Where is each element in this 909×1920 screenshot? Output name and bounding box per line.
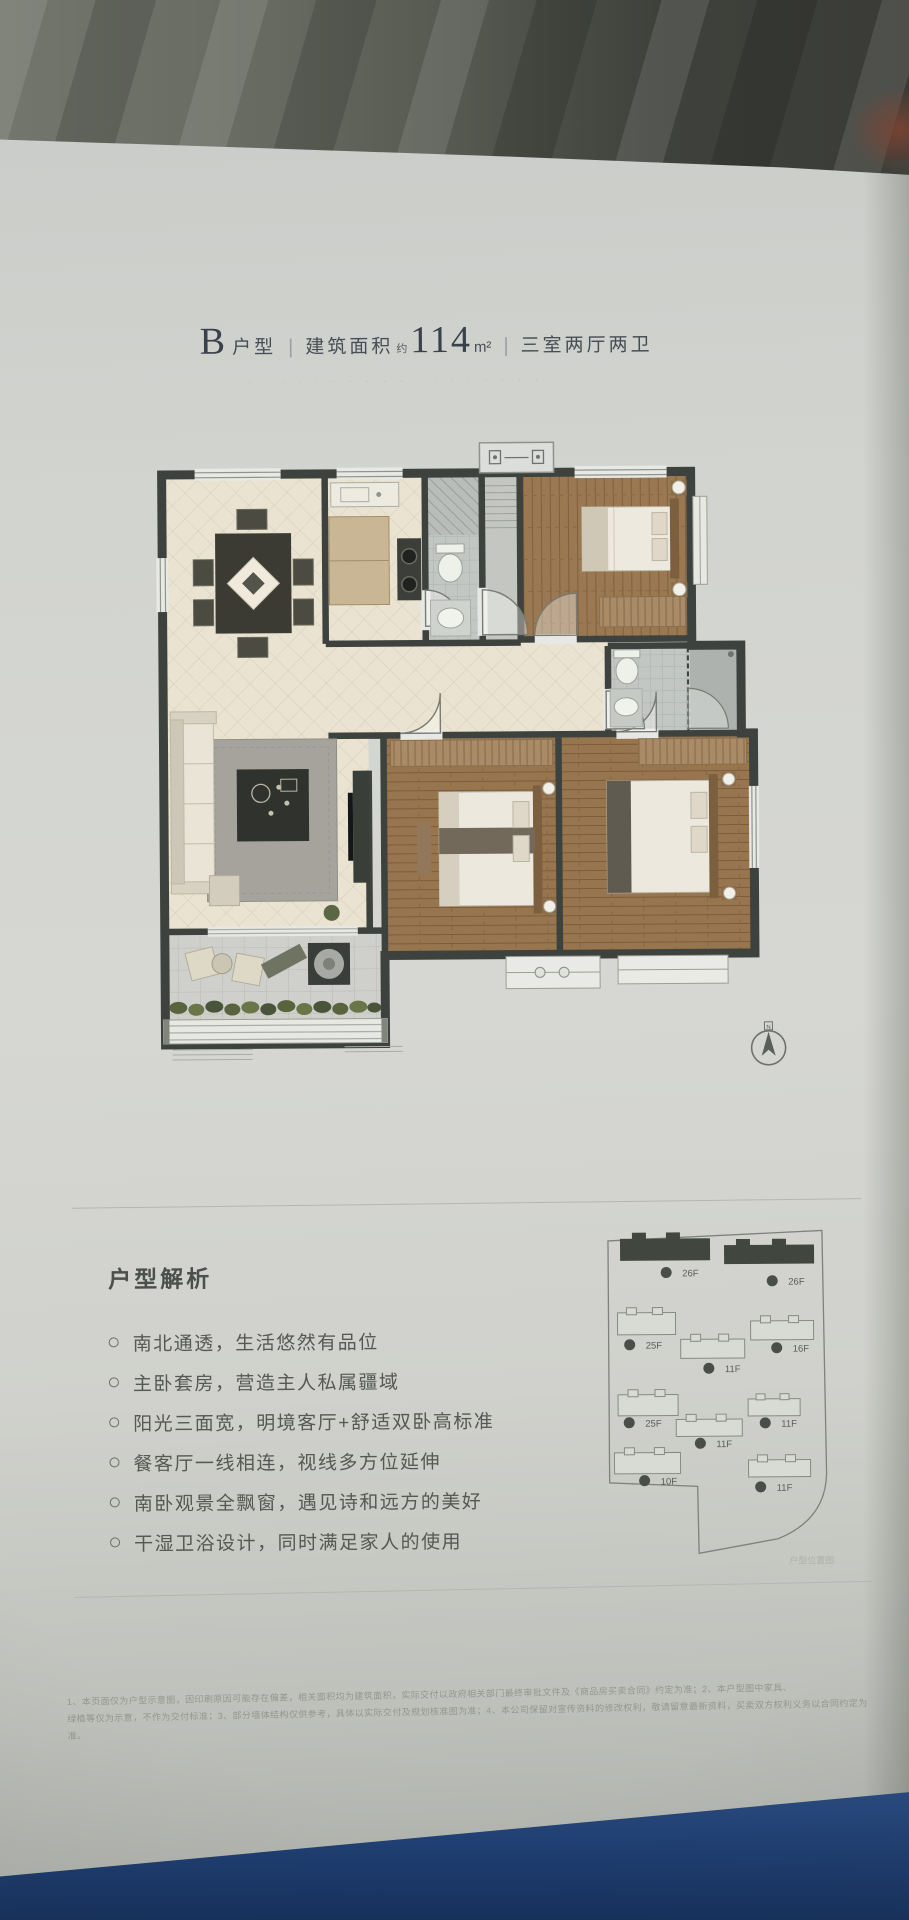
site-building: 11F	[748, 1455, 810, 1494]
bullet-text: 南卧观景全飘窗，遇见诗和远方的美好	[134, 1486, 483, 1515]
lamp-icon	[544, 900, 556, 912]
site-building-highlighted: 26F	[724, 1238, 814, 1288]
list-item: 南卧观景全飘窗，遇见诗和远方的美好	[110, 1479, 580, 1522]
master-wardrobe	[390, 739, 552, 766]
bullet-text: 阳光三面宽，明境客厅+舒适双卧高标准	[133, 1406, 494, 1436]
floor-plan: N	[108, 438, 800, 1088]
bench	[417, 822, 431, 874]
building-floors-label: 25F	[646, 1341, 663, 1352]
building-floors-label: 11F	[777, 1483, 793, 1494]
building-badge	[661, 1267, 672, 1278]
list-item: 主卧套房，营造主人私属疆域	[109, 1359, 579, 1402]
site-building: 11F	[681, 1334, 745, 1375]
lamp-icon	[673, 583, 686, 596]
bullet-icon	[109, 1417, 119, 1427]
tv-icon	[348, 793, 353, 861]
building-badge	[760, 1417, 771, 1428]
disclaimer: 1、本页面仅为户型示意图，因印刷原因可能存在偏差，相关面积均为建筑面积，实际交付…	[67, 1678, 874, 1745]
site-building-highlighted: 26F	[620, 1232, 710, 1280]
balcony-table	[212, 954, 232, 974]
title-watermark: · · · · · · · · · · · · · · · · · ·	[248, 375, 544, 386]
coffee-table	[237, 769, 310, 842]
building-floors-label: 11F	[716, 1439, 732, 1450]
building-badge	[755, 1481, 766, 1492]
building-floors-label: 11F	[725, 1364, 741, 1375]
unit-title: B 户型 | 建筑面积 约 114 m² | 三室两厅两卫	[200, 317, 653, 364]
site-plan-caption: 户型位置图	[789, 1554, 834, 1565]
bullet-icon	[110, 1537, 120, 1547]
area-approx: 约	[396, 340, 407, 356]
bedroom2-wardrobe	[599, 596, 685, 627]
bullet-icon	[110, 1497, 120, 1507]
bullet-text: 餐客厅一线相连，视线多方位延伸	[133, 1447, 441, 1476]
site-building: 11F	[748, 1394, 800, 1430]
area-value: 114	[410, 318, 472, 362]
list-item: 阳光三面宽，明境客厅+舒适双卧高标准	[109, 1399, 579, 1442]
site-building: 16F	[750, 1316, 813, 1355]
unit-label: 户型	[232, 332, 276, 359]
building-floors-label: 11F	[781, 1419, 797, 1430]
site-building: 25F	[617, 1307, 675, 1351]
bullet-text: 南北通透，生活悠然有品位	[133, 1327, 379, 1356]
building-floors-label: 25F	[645, 1419, 662, 1430]
bullet-icon	[109, 1377, 119, 1387]
lamp-icon	[723, 773, 735, 785]
photo-of-floorplan-page: B 户型 | 建筑面积 约 114 m² | 三室两厅两卫 · · · · · …	[0, 0, 909, 1920]
building-badge	[767, 1275, 778, 1286]
toilet2-icon	[614, 650, 640, 658]
elevator-lobby	[479, 442, 553, 473]
title-divider: |	[288, 336, 293, 359]
bullet-text: 干湿卫浴设计，同时满足家人的使用	[134, 1526, 462, 1555]
tv-wall	[353, 771, 370, 883]
analysis-section: 户型解析 南北通透，生活悠然有品位 主卧套房，营造主人私属疆域 阳光三面宽，明境…	[108, 1257, 580, 1562]
compass-icon: N	[751, 1022, 785, 1065]
compass-label: N	[766, 1025, 770, 1031]
building-floors-label: 26F	[682, 1268, 699, 1279]
bullet-icon	[109, 1337, 119, 1347]
shower-head-icon	[728, 651, 734, 657]
bedroom3-wardrobe	[638, 738, 746, 765]
site-plan: 26F 26F 25F 16F 11F	[600, 1223, 860, 1570]
side-table	[209, 875, 239, 905]
building-floors-label: 10F	[661, 1476, 678, 1487]
balcony-chair	[232, 953, 265, 986]
bullet-text: 主卧套房，营造主人私属疆域	[133, 1367, 400, 1396]
building-badge	[624, 1417, 635, 1428]
area-unit: m²	[474, 339, 492, 356]
brochure-page: B 户型 | 建筑面积 约 114 m² | 三室两厅两卫 · · · · · …	[0, 0, 909, 1920]
site-building: 10F	[614, 1447, 680, 1487]
site-building: 25F	[618, 1389, 678, 1429]
building-badge	[771, 1342, 782, 1353]
building-badge	[703, 1363, 714, 1374]
toilet1-icon	[436, 544, 464, 553]
title-divider-2: |	[503, 335, 508, 358]
lamp-icon	[723, 887, 735, 899]
lamp-icon	[543, 782, 555, 794]
analysis-heading: 户型解析	[108, 1257, 578, 1294]
building-badge	[695, 1438, 706, 1449]
plant-icon	[324, 905, 340, 921]
list-item: 干湿卫浴设计，同时满足家人的使用	[110, 1519, 580, 1562]
area-label: 建筑面积	[305, 331, 393, 359]
lamp-icon	[672, 481, 685, 494]
building-badge	[639, 1475, 650, 1486]
list-item: 南北通透，生活悠然有品位	[109, 1319, 579, 1362]
building-floors-label: 16F	[793, 1344, 810, 1355]
building-floors-label: 26F	[788, 1277, 805, 1288]
sofa	[183, 724, 214, 882]
section-divider	[72, 1198, 862, 1209]
unit-letter: B	[200, 320, 226, 364]
list-item: 餐客厅一线相连，视线多方位延伸	[109, 1439, 579, 1482]
shaft-hatch	[428, 477, 479, 535]
building-badge	[624, 1339, 635, 1350]
layout-text: 三室两厅两卫	[520, 330, 652, 358]
bullet-icon	[109, 1457, 119, 1467]
bay-windows	[506, 955, 728, 989]
footer-divider	[74, 1581, 872, 1598]
site-building: 11F	[676, 1414, 742, 1450]
